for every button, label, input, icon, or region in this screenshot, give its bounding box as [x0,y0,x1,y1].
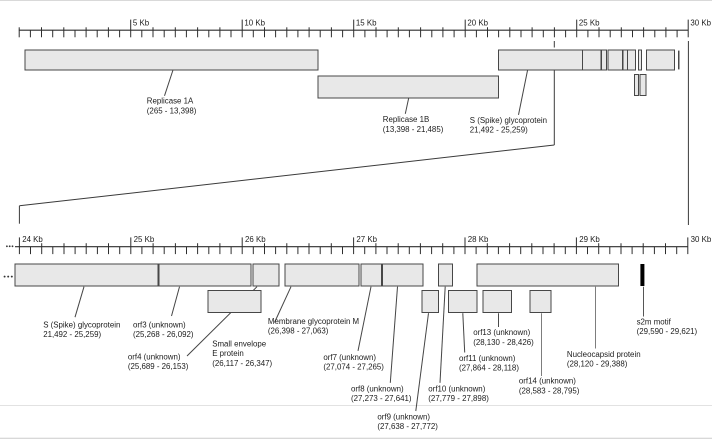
svg-text:29 Kb: 29 Kb [579,235,600,244]
svg-text:24 Kb: 24 Kb [22,235,43,244]
svg-text:15 Kb: 15 Kb [356,19,377,28]
svg-text:(28,120 - 29,388): (28,120 - 29,388) [567,360,628,369]
svg-text:S (Spike) glycoprotein: S (Spike) glycoprotein [43,321,120,330]
svg-text:(26,117 - 26,347): (26,117 - 26,347) [212,359,272,368]
svg-text:(28,130 - 28,426): (28,130 - 28,426) [473,338,534,347]
svg-text:orf14 (unknown): orf14 (unknown) [519,377,576,386]
svg-text:S (Spike) glycoprotein: S (Spike) glycoprotein [470,116,547,125]
svg-text:(26,398 - 27,063): (26,398 - 27,063) [268,327,329,336]
svg-text:21,492 - 25,259): 21,492 - 25,259) [43,330,101,339]
svg-text:10 Kb: 10 Kb [244,19,265,28]
svg-text:orf7 (unknown): orf7 (unknown) [323,353,376,362]
svg-text:orf9 (unknown): orf9 (unknown) [377,412,430,421]
svg-text:28 Kb: 28 Kb [468,235,489,244]
svg-text:(29,590 - 29,621): (29,590 - 29,621) [637,327,698,336]
svg-text:Replicase 1B: Replicase 1B [383,115,430,124]
svg-text:(27,074 - 27,265): (27,074 - 27,265) [323,363,384,372]
svg-text:26 Kb: 26 Kb [245,235,266,244]
svg-text:(25,689 - 26,153): (25,689 - 26,153) [128,362,189,371]
svg-text:(27,273 - 27,641): (27,273 - 27,641) [351,394,412,403]
svg-text:21,492 - 25,259): 21,492 - 25,259) [470,126,528,135]
svg-text:(13,398 - 21,485): (13,398 - 21,485) [383,125,444,134]
svg-text:25 Kb: 25 Kb [579,19,600,28]
svg-text:(27,779 - 27,898): (27,779 - 27,898) [428,394,489,403]
svg-text:orf13 (unknown): orf13 (unknown) [473,328,530,337]
svg-text:orf4 (unknown): orf4 (unknown) [128,352,181,361]
svg-text:orf3 (unknown): orf3 (unknown) [133,321,186,330]
svg-text:Nucleocapsid protein: Nucleocapsid protein [567,350,641,359]
svg-text:30 Kb: 30 Kb [690,19,711,28]
svg-text:orf10 (unknown): orf10 (unknown) [428,384,485,393]
svg-text:Small envelope: Small envelope [212,339,267,348]
svg-text:orf11 (unknown): orf11 (unknown) [459,354,516,363]
svg-text:20 Kb: 20 Kb [467,19,488,28]
svg-text:27 Kb: 27 Kb [356,235,377,244]
svg-text:(27,638 - 27,772): (27,638 - 27,772) [377,422,438,431]
svg-text:Membrane glycoprotein M: Membrane glycoprotein M [268,317,359,326]
svg-text:(25,268 - 26,092): (25,268 - 26,092) [133,330,194,339]
svg-text:s2m motif: s2m motif [637,317,672,326]
svg-text:25 Kb: 25 Kb [134,235,155,244]
svg-text:30 Kb: 30 Kb [691,235,712,244]
svg-text:orf8 (unknown): orf8 (unknown) [351,384,404,393]
svg-text:E protein: E protein [212,349,244,358]
svg-text:(28,583 - 28,795): (28,583 - 28,795) [519,386,580,395]
svg-text:(265 - 13,398): (265 - 13,398) [147,106,197,115]
svg-text:(27,864 - 28,118): (27,864 - 28,118) [459,364,519,373]
svg-text:5 Kb: 5 Kb [133,19,150,28]
svg-text:Replicase 1A: Replicase 1A [147,97,194,106]
